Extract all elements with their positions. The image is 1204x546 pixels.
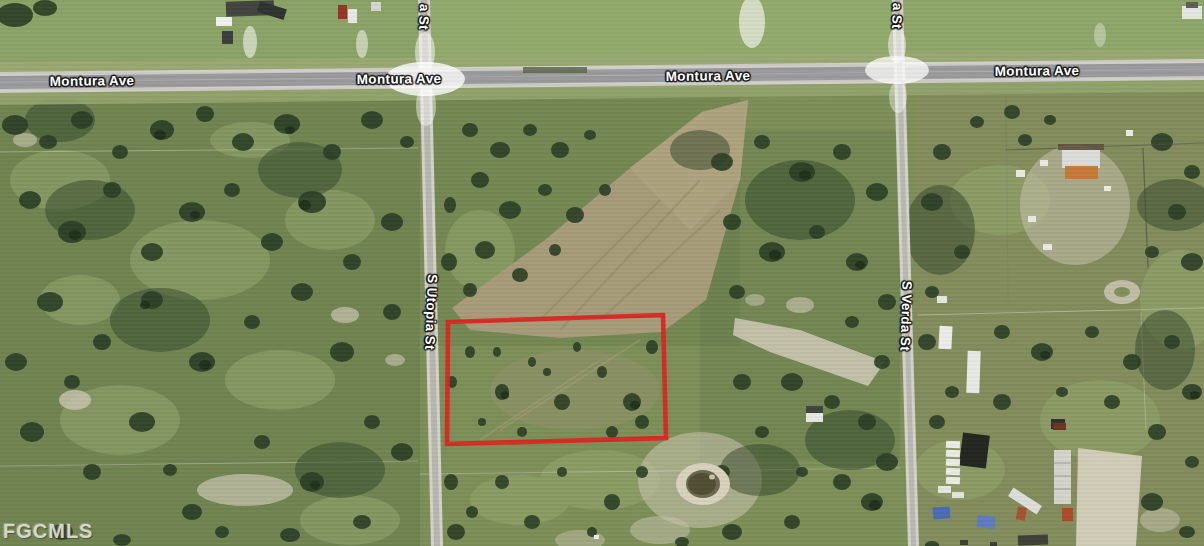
- pond: [676, 463, 730, 505]
- satellite-map: Montura Ave Montura Ave Montura Ave Mont…: [0, 0, 1204, 546]
- aerial-terrain: [0, 0, 1204, 546]
